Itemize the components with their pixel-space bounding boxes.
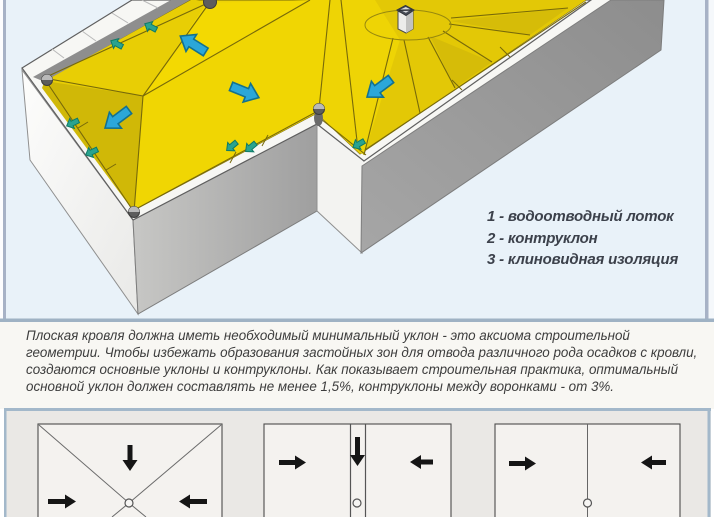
svg-text:создаются основные уклоны и ко: создаются основные уклоны и контруклоны.…: [26, 362, 679, 377]
svg-text:основной уклон должен составля: основной уклон должен составлять не мене…: [26, 379, 614, 394]
svg-text:1 - водоотводный лоток: 1 - водоотводный лоток: [487, 208, 675, 225]
svg-text:геометрии. Чтобы избежать обра: геометрии. Чтобы избежать образования за…: [26, 345, 697, 360]
svg-text:Плоская кровля должна иметь не: Плоская кровля должна иметь необходимый …: [26, 328, 630, 343]
svg-text:3 - клиновидная изоляция: 3 - клиновидная изоляция: [487, 251, 678, 268]
svg-text:2 - контруклон: 2 - контруклон: [486, 230, 598, 247]
